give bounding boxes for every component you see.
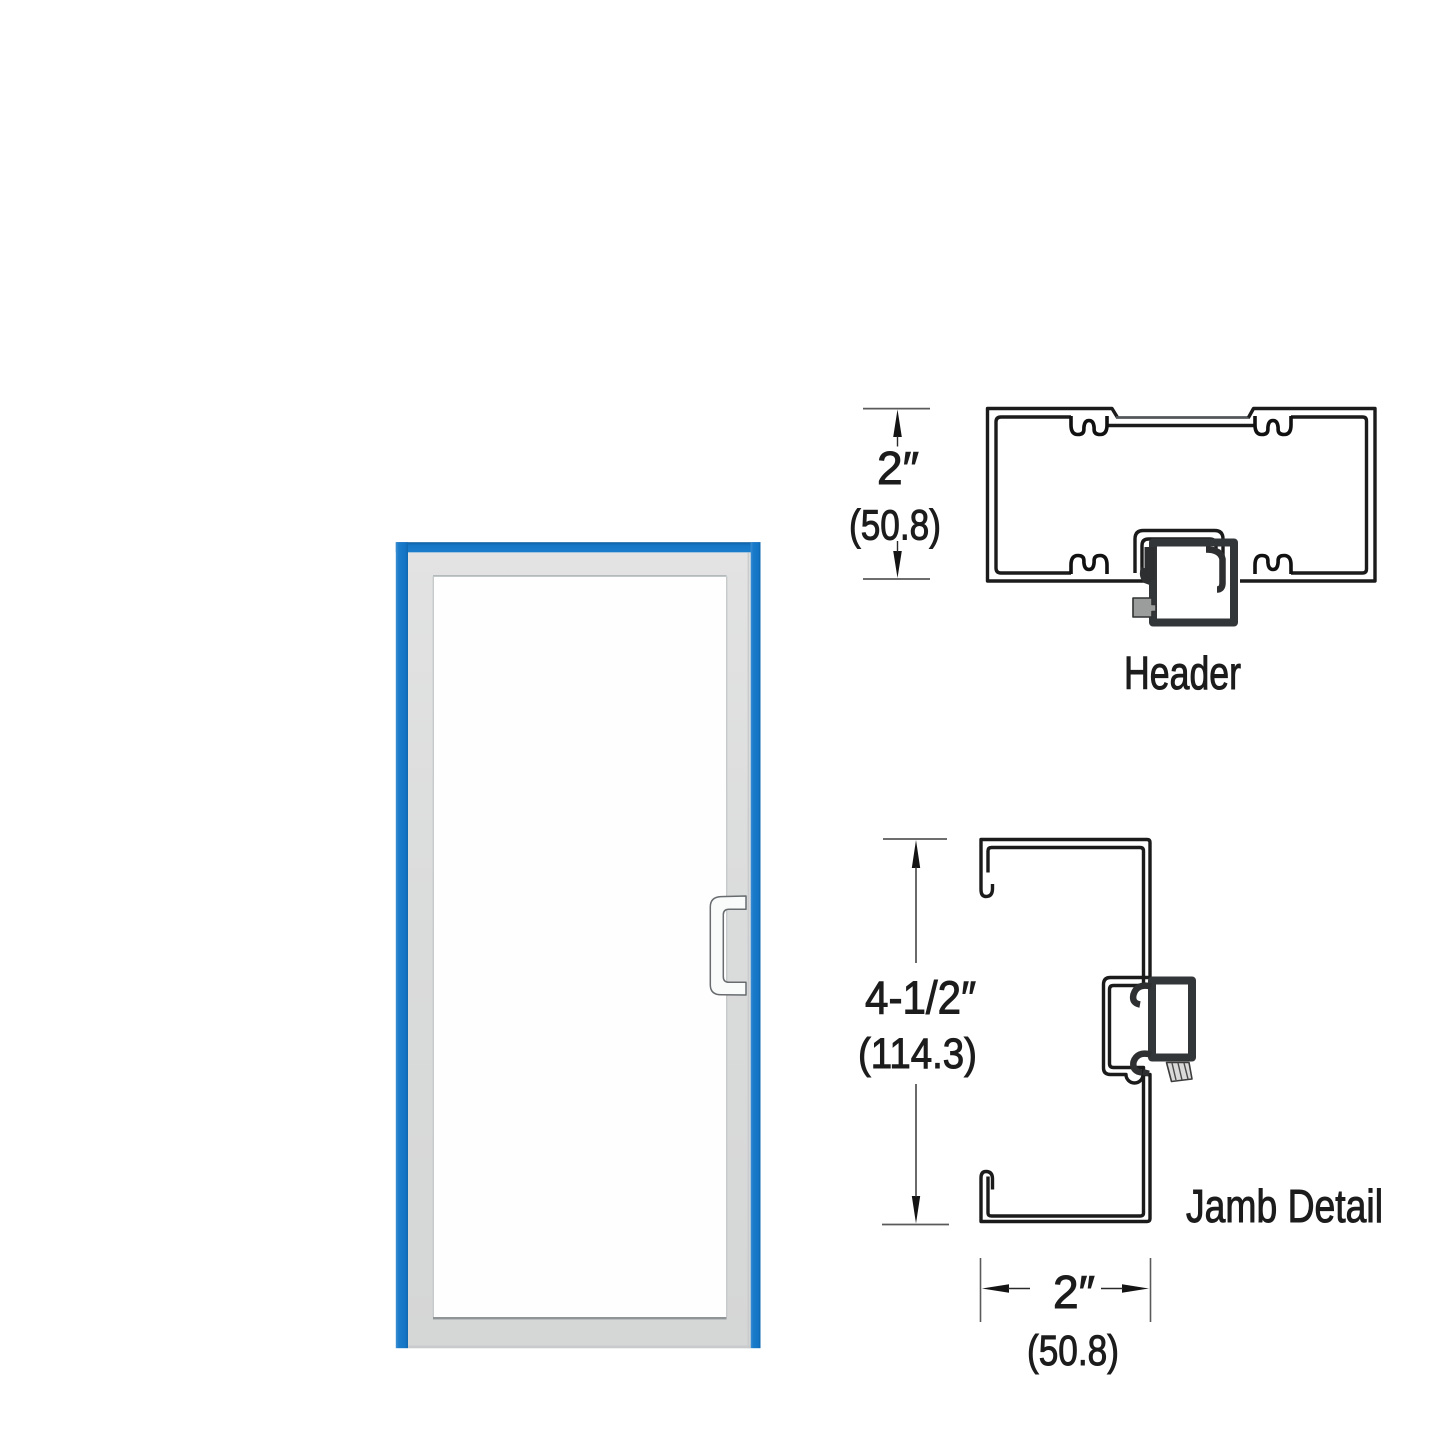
svg-text:4-1/2″: 4-1/2″ xyxy=(865,972,976,1024)
svg-text:2″: 2″ xyxy=(1053,1266,1095,1318)
svg-text:(50.8): (50.8) xyxy=(1027,1327,1119,1375)
svg-text:Header: Header xyxy=(1124,647,1241,699)
svg-text:(114.3): (114.3) xyxy=(858,1030,977,1078)
svg-text:(50.8): (50.8) xyxy=(849,502,941,550)
svg-text:Jamb Detail: Jamb Detail xyxy=(1186,1180,1383,1232)
svg-text:2″: 2″ xyxy=(877,442,919,494)
